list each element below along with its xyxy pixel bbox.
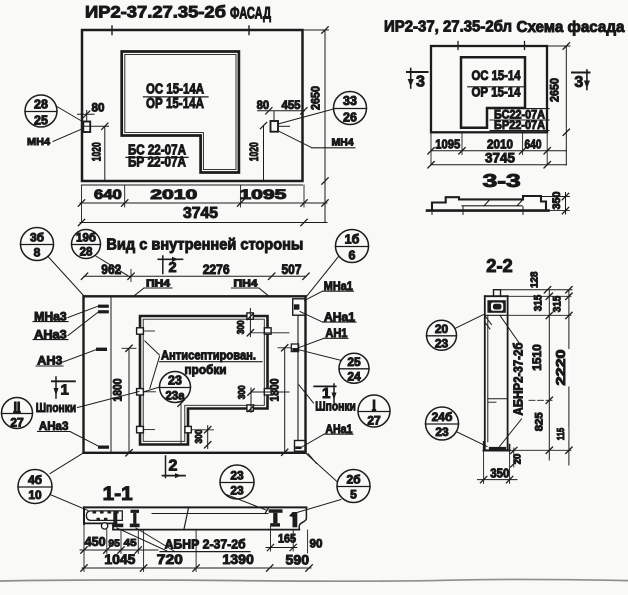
svg-text:165: 165 xyxy=(278,532,296,546)
svg-text:962: 962 xyxy=(101,262,121,277)
svg-text:128: 128 xyxy=(529,271,541,288)
svg-text:300: 300 xyxy=(236,385,248,399)
svg-text:23: 23 xyxy=(168,374,182,388)
svg-text:590: 590 xyxy=(286,553,310,568)
svg-text:25: 25 xyxy=(347,355,361,369)
svg-text:3745: 3745 xyxy=(485,151,515,166)
svg-text:26: 26 xyxy=(343,111,357,125)
svg-text:455: 455 xyxy=(282,98,301,112)
svg-text:10: 10 xyxy=(28,488,42,502)
svg-text:825: 825 xyxy=(533,412,545,431)
svg-text:350: 350 xyxy=(490,466,509,480)
svg-text:23: 23 xyxy=(435,425,449,439)
svg-text:115: 115 xyxy=(555,428,567,441)
svg-text:5: 5 xyxy=(350,488,357,502)
svg-text:1020: 1020 xyxy=(91,142,103,161)
svg-text:315: 315 xyxy=(533,295,545,312)
svg-text:2010: 2010 xyxy=(150,186,197,202)
svg-text:45: 45 xyxy=(124,537,137,549)
svg-text:315: 315 xyxy=(552,296,564,313)
svg-text:23: 23 xyxy=(230,469,244,483)
svg-text:1095: 1095 xyxy=(239,186,286,202)
svg-text:28: 28 xyxy=(80,247,93,259)
svg-text:90: 90 xyxy=(310,537,323,551)
svg-text:ОР 15-14: ОР 15-14 xyxy=(472,85,521,100)
svg-text:300: 300 xyxy=(193,429,205,443)
svg-text:1: 1 xyxy=(61,382,69,399)
svg-text:I: I xyxy=(372,398,375,412)
svg-text:АБНР 2-37-2б: АБНР 2-37-2б xyxy=(165,537,246,552)
svg-text:23: 23 xyxy=(435,337,449,351)
svg-text:ФАСАД: ФАСАД xyxy=(230,5,271,23)
svg-text:2650: 2650 xyxy=(311,86,323,110)
svg-text:4б: 4б xyxy=(28,473,42,487)
svg-text:28: 28 xyxy=(34,98,48,112)
svg-text:20: 20 xyxy=(512,453,523,464)
svg-text:2276: 2276 xyxy=(203,262,230,277)
svg-text:Схема фасада: Схема фасада xyxy=(517,19,625,36)
svg-text:АБНР2-37-2б: АБНР2-37-2б xyxy=(511,342,525,415)
svg-text:6: 6 xyxy=(349,249,356,263)
svg-text:БР 22-07А: БР 22-07А xyxy=(128,155,186,171)
svg-text:Шпонки: Шпонки xyxy=(36,400,76,415)
svg-text:8: 8 xyxy=(34,246,41,260)
svg-text:1045: 1045 xyxy=(104,552,135,567)
svg-text:II: II xyxy=(14,400,21,414)
svg-text:300: 300 xyxy=(235,320,247,334)
svg-text:2б: 2б xyxy=(346,473,360,487)
svg-text:МН4: МН4 xyxy=(27,136,50,148)
svg-text:23: 23 xyxy=(230,484,244,498)
svg-text:2650: 2650 xyxy=(550,78,562,102)
svg-text:2: 2 xyxy=(169,458,178,475)
svg-text:640: 640 xyxy=(525,138,542,152)
svg-text:24: 24 xyxy=(347,370,361,384)
svg-text:ОР 15-14А: ОР 15-14А xyxy=(146,96,204,112)
svg-text:3745: 3745 xyxy=(183,205,218,222)
svg-text:27: 27 xyxy=(10,416,24,430)
svg-text:Антисептирован.: Антисептирован. xyxy=(161,348,256,363)
svg-text:33: 33 xyxy=(343,94,357,108)
svg-text:2-2: 2-2 xyxy=(486,256,513,276)
svg-text:3-3: 3-3 xyxy=(483,171,521,191)
svg-text:3б: 3б xyxy=(30,231,44,245)
svg-text:1510: 1510 xyxy=(532,344,544,371)
svg-text:19б: 19б xyxy=(76,233,96,245)
svg-text:25: 25 xyxy=(34,114,48,128)
svg-text:24б: 24б xyxy=(432,410,453,424)
svg-text:1020: 1020 xyxy=(249,142,261,161)
svg-text:80: 80 xyxy=(257,98,270,112)
svg-text:Шпонки: Шпонки xyxy=(315,398,356,413)
svg-text:2010: 2010 xyxy=(487,138,513,152)
svg-text:1390: 1390 xyxy=(222,552,254,567)
svg-text:27: 27 xyxy=(367,414,381,428)
svg-text:ОС 15-14: ОС 15-14 xyxy=(472,68,521,83)
svg-text:МН4: МН4 xyxy=(332,137,354,149)
svg-text:2220: 2220 xyxy=(554,349,568,385)
svg-text:пробки: пробки xyxy=(185,362,227,377)
svg-text:ИР2-37.27.35-2б: ИР2-37.27.35-2б xyxy=(85,4,226,22)
svg-text:20: 20 xyxy=(435,322,449,336)
svg-text:1-1: 1-1 xyxy=(103,484,133,505)
svg-text:2: 2 xyxy=(169,260,177,276)
svg-text:3: 3 xyxy=(416,74,425,91)
svg-text:95: 95 xyxy=(108,538,120,550)
svg-text:350: 350 xyxy=(551,192,563,210)
svg-text:1б: 1б xyxy=(345,233,360,247)
svg-text:80: 80 xyxy=(92,100,105,114)
svg-text:720: 720 xyxy=(157,552,183,567)
svg-text:507: 507 xyxy=(282,262,302,277)
svg-text:1095: 1095 xyxy=(435,138,460,152)
svg-text:ИР2-37, 27.35-2бл: ИР2-37, 27.35-2бл xyxy=(384,19,512,36)
svg-text:3: 3 xyxy=(574,74,583,91)
svg-text:БР22-07А: БР22-07А xyxy=(494,118,545,132)
svg-text:23а: 23а xyxy=(165,391,185,403)
svg-text:Вид с внутренней стороны: Вид с внутренней стороны xyxy=(106,237,303,254)
svg-text:640: 640 xyxy=(94,186,122,202)
